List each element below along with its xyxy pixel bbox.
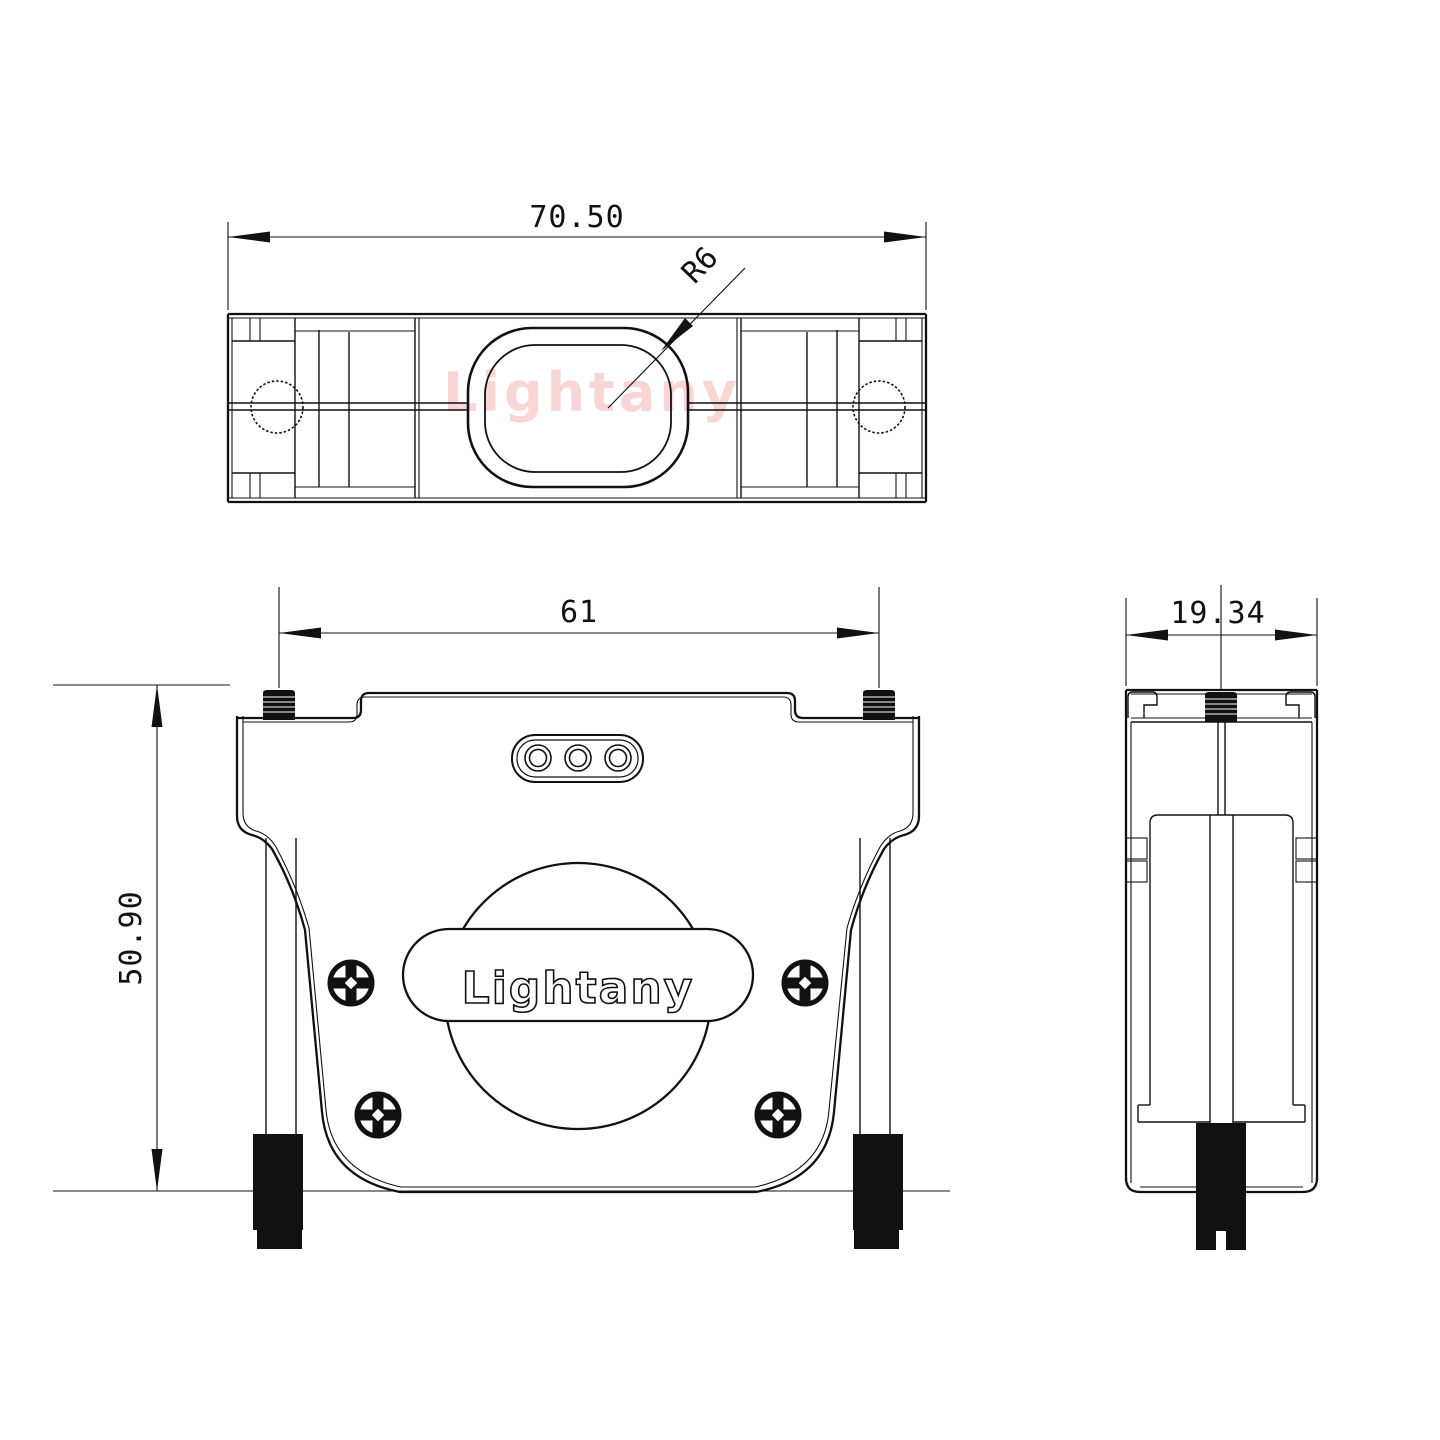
dim-front-height-label: 50.90	[114, 890, 149, 985]
dim-front-width-label: 61	[560, 595, 598, 630]
brand-watermark: Lightany	[443, 361, 741, 424]
connector-hood-drawing: Lightany	[0, 0, 1440, 1440]
dim-top-width-label: 70.50	[529, 200, 624, 235]
cable-post-side	[1196, 1123, 1246, 1250]
cable-post-left	[253, 1134, 303, 1249]
technical-drawing-page: Lightany	[0, 0, 1440, 1440]
phillips-screw-top-left	[330, 962, 372, 1004]
dim-side-width-label: 19.34	[1170, 596, 1265, 631]
phillips-screw-bottom-left	[357, 1094, 399, 1136]
jackscrew-stud-left	[262, 690, 296, 720]
indicator-plate	[512, 735, 643, 782]
jackscrew-stud-right	[862, 690, 896, 720]
cable-post-right	[853, 1134, 903, 1249]
jackscrew-stud-side	[1204, 692, 1238, 722]
phillips-screw-bottom-right	[757, 1094, 799, 1136]
phillips-screw-top-right	[784, 962, 826, 1004]
logo-text: Lightany	[462, 963, 695, 1014]
